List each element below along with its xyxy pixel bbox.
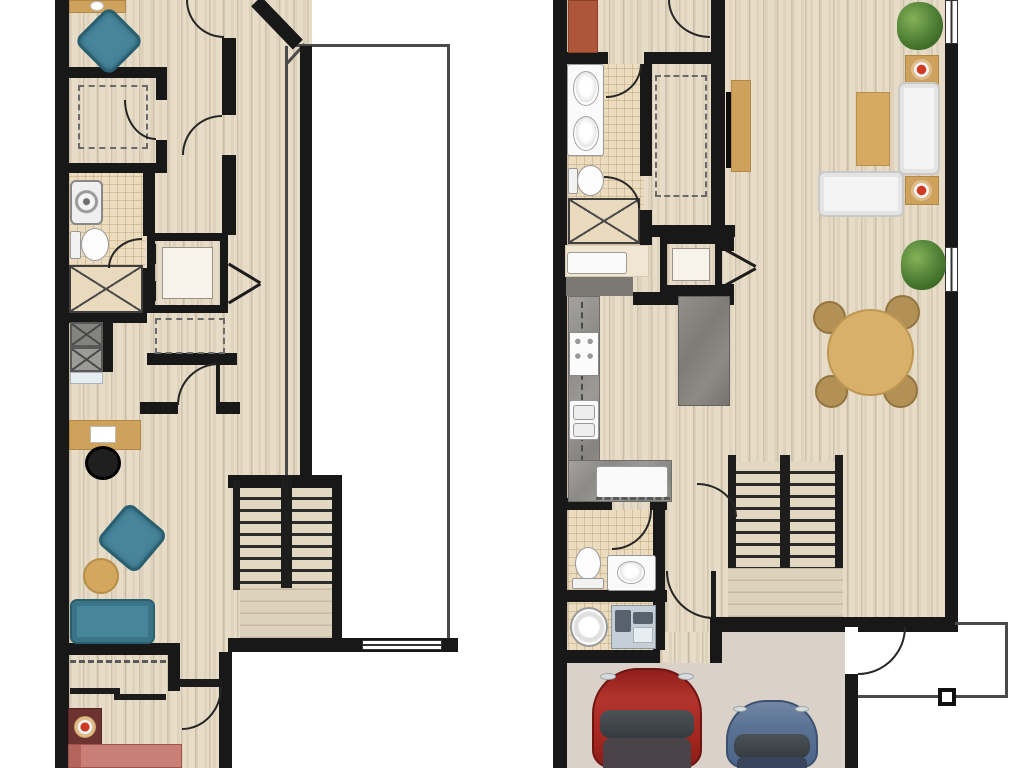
main-garage-car-red-headlight-a — [600, 673, 616, 680]
main-tv-console — [731, 80, 751, 172]
upper-wall-hall-b — [222, 155, 236, 235]
upper-wall-open-left — [300, 46, 312, 480]
upper-wall-vestibule-top — [147, 353, 237, 365]
upper-hall-closet-track-b — [150, 281, 156, 301]
main-wall-garage-connector — [710, 617, 722, 663]
upper-open-edge-top — [292, 44, 450, 47]
upper-closet2-rod-dashed — [70, 660, 166, 664]
upper-closet2-slider-b — [114, 694, 166, 700]
upper-builtin-dashed — [155, 318, 225, 354]
main-garage-car-blue-roof — [737, 757, 807, 768]
main-wall-right-exterior-a — [945, 43, 958, 247]
main-bath-sink-a — [573, 71, 599, 106]
upper-door-leaf-office — [216, 363, 220, 405]
upper-office-desk-paper — [90, 426, 116, 443]
main-porch-edge-bottom — [858, 695, 1008, 698]
upper-closet2-slider-a — [70, 688, 120, 694]
main-door-leaf-garage-hall — [711, 571, 716, 619]
main-end-table-plate-a — [910, 58, 933, 81]
main-kitchen-stove — [569, 332, 599, 376]
main-coffee-table — [856, 92, 890, 166]
main-walkin-closet-dashed — [655, 75, 707, 197]
main-laundry-washer — [570, 607, 608, 647]
main-loveseat — [818, 171, 904, 217]
upper-lounge-ottoman — [83, 558, 119, 594]
main-dining-table — [827, 309, 914, 396]
main-window-right-top — [945, 0, 958, 44]
main-tv — [726, 92, 731, 168]
upper-stairwell-guardrail — [285, 46, 288, 475]
main-powder-sink — [617, 561, 645, 584]
upper-bath-sink — [70, 180, 103, 225]
upper-laundry-tray — [70, 372, 103, 384]
main-counter-pass-through — [566, 276, 633, 296]
main-kitchen-counter-dash-b — [596, 497, 670, 501]
upper-window-bottom — [362, 640, 442, 650]
main-cream-counter-inner — [567, 252, 627, 274]
main-wall-right-exterior-b — [945, 292, 958, 632]
main-stairs-landing — [728, 568, 843, 617]
upper-washer — [70, 322, 103, 347]
main-laundry-utility-panel-c — [633, 627, 653, 643]
main-garage-car-blue-headlight-b — [795, 706, 809, 712]
main-garage-car-red-roof — [603, 738, 691, 768]
main-stairs-rail-right — [835, 455, 843, 575]
main-wall-landing-bottom — [719, 617, 852, 632]
main-stairs-divider — [780, 455, 790, 580]
main-kitchen-counter-dash — [581, 302, 583, 482]
upper-stairs-rail-left — [233, 480, 240, 590]
upper-bedroom1-desk-dish — [90, 1, 104, 11]
main-bedroom-dresser — [568, 0, 598, 53]
main-porch-post — [938, 688, 956, 706]
floorplan-canvas — [0, 0, 1024, 768]
upper-dryer — [70, 347, 103, 372]
upper-nightstand-plate — [74, 716, 96, 738]
upper-wall-bath-top — [55, 163, 167, 173]
main-laundry-utility-panel-b — [633, 612, 653, 624]
upper-hall-closet-track-a — [150, 244, 156, 264]
main-garage-car-blue-headlight-a — [733, 706, 747, 712]
upper-wall-hall-a — [222, 38, 236, 115]
main-bath-sink-b — [573, 116, 599, 151]
main-wall-living-left — [711, 0, 725, 237]
main-toilet1-bowl — [577, 165, 604, 196]
main-hall-closet-shelf — [672, 248, 710, 281]
upper-office-chair — [85, 446, 121, 480]
upper-wall-office-bottom — [55, 643, 168, 655]
upper-wall-office-top-a — [140, 402, 178, 414]
main-wall-laundry-top — [553, 590, 667, 602]
upper-bed — [68, 744, 182, 768]
main-kitchen-sink-basin-a — [573, 405, 595, 420]
upper-wall-laundry-right — [102, 320, 113, 372]
upper-wall-bedroom2-right — [219, 652, 232, 768]
main-sofa — [898, 82, 940, 175]
main-garage-car-blue-windshield — [734, 734, 810, 758]
upper-toilet-bowl — [81, 228, 109, 261]
main-garage-entry-step — [660, 632, 710, 663]
main-front-door-opening — [845, 627, 858, 674]
upper-wall-bath-right-a — [143, 173, 155, 236]
upper-lounge-sofa — [70, 599, 155, 644]
main-wall-bath-top — [553, 52, 608, 64]
upper-stairs-flight-b — [292, 488, 332, 588]
main-laundry-utility-panel-a — [615, 610, 631, 632]
upper-wall-closet2-right — [168, 643, 180, 691]
upper-hall-closet-shelf — [162, 247, 213, 299]
main-wall-bath-right-a — [640, 64, 652, 176]
upper-toilet-tank — [70, 231, 81, 259]
upper-stairs-divider — [281, 475, 292, 603]
upper-stairs-flight-a — [240, 488, 281, 588]
main-kitchen-dishwasher — [596, 466, 668, 498]
main-garage-car-red-headlight-b — [678, 673, 694, 680]
main-end-table-plate-b — [910, 179, 933, 202]
main-porch-edge-right — [1005, 622, 1008, 698]
main-toilet2-tank — [572, 578, 604, 589]
upper-open-edge-right — [447, 44, 450, 638]
upper-door-stub-bedroom2 — [180, 679, 223, 687]
main-garage-car-red-windshield — [600, 710, 694, 738]
main-window-right-mid — [945, 247, 958, 292]
upper-stairs-landing — [240, 588, 332, 638]
main-stairs-flight-a — [736, 462, 780, 568]
main-wall-garage-top — [553, 650, 660, 663]
upper-shower — [69, 265, 143, 313]
upper-wall-closet-right-a — [156, 67, 167, 100]
main-toilet2-bowl — [575, 547, 601, 580]
main-porch-edge-top — [955, 622, 1008, 625]
main-stairs-flight-b — [790, 462, 835, 568]
main-kitchen-island — [678, 296, 730, 406]
main-kitchen-sink-basin-b — [573, 423, 595, 437]
